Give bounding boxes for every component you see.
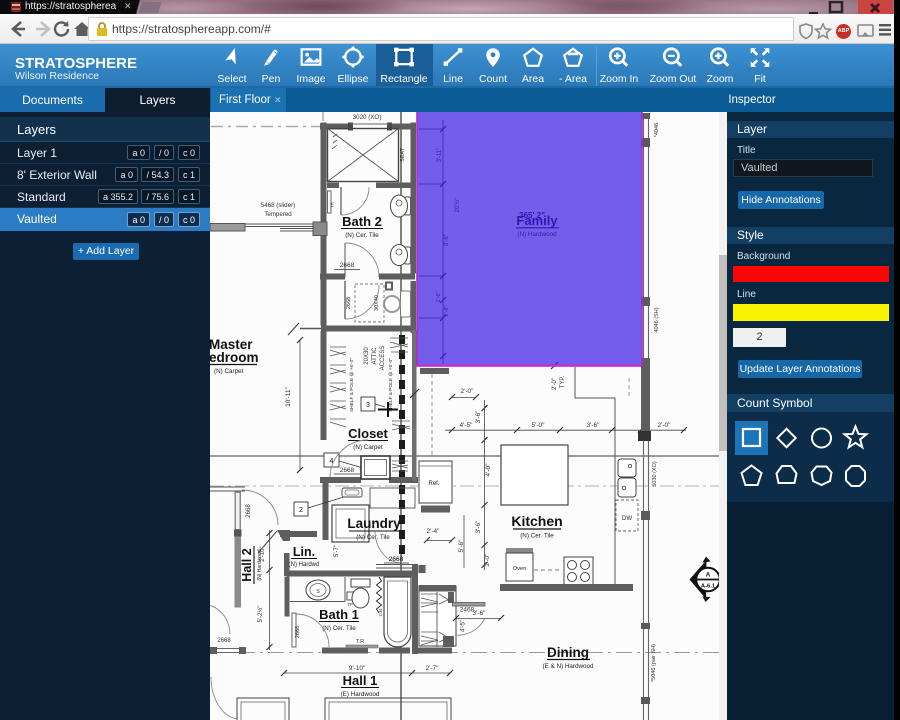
svg-text:A: A xyxy=(706,572,711,579)
svg-text:(N) Cer. Tile: (N) Cer. Tile xyxy=(520,533,554,540)
svg-text:2'-10": 2'-10" xyxy=(260,546,266,561)
svg-text:2'-0": 2'-0" xyxy=(552,378,558,390)
svg-text:2668: 2668 xyxy=(340,467,355,474)
svg-text:Oven: Oven xyxy=(513,566,527,572)
svg-text:3'-6": 3'-6" xyxy=(473,610,487,617)
svg-text:2668: 2668 xyxy=(346,297,352,309)
svg-text:2: 2 xyxy=(299,507,303,514)
svg-text:(N) Cer. Tile: (N) Cer. Tile xyxy=(356,534,390,541)
svg-text:SHELF & POLE @ +6'-0": SHELF & POLE @ +6'-0" xyxy=(349,358,355,412)
svg-text:Hall 2: Hall 2 xyxy=(240,548,254,581)
svg-text:Hall 1: Hall 1 xyxy=(343,673,378,688)
svg-text:2668: 2668 xyxy=(246,504,252,518)
svg-text:5'-6": 5'-6" xyxy=(458,539,465,553)
svg-text:4'-5": 4'-5" xyxy=(461,620,467,632)
svg-text:(N) Cer. Tile: (N) Cer. Tile xyxy=(322,625,356,632)
svg-text:*4046: *4046 xyxy=(654,123,660,137)
svg-text:3: 3 xyxy=(366,402,370,409)
svg-text:5'-0": 5'-0" xyxy=(532,422,546,429)
svg-text:3'-6": 3'-6" xyxy=(587,422,601,429)
svg-text:(N) Hardwd: (N) Hardwd xyxy=(289,562,320,568)
svg-text:30X40: 30X40 xyxy=(374,295,380,311)
svg-text:3020 (XO): 3020 (XO) xyxy=(353,114,382,121)
svg-text:Laundry: Laundry xyxy=(347,516,401,531)
svg-text:(N) Carpet: (N) Carpet xyxy=(353,444,383,451)
svg-text:2'-0": 2'-0" xyxy=(484,553,491,567)
svg-text:TYP.: TYP. xyxy=(560,375,566,388)
svg-text:5'-7": 5'-7" xyxy=(334,545,340,557)
svg-text:5'-2½": 5'-2½" xyxy=(257,606,264,623)
svg-text:Dining: Dining xyxy=(547,645,589,660)
svg-text:ACCESS: ACCESS xyxy=(380,346,386,371)
svg-text:TR: TR xyxy=(330,201,335,208)
svg-text:Closet: Closet xyxy=(348,426,388,441)
svg-text:3'-6": 3'-6" xyxy=(475,410,482,424)
svg-text:C.B.: C.B. xyxy=(378,608,383,617)
svg-text:(N) Cer. Tile: (N) Cer. Tile xyxy=(345,232,379,239)
svg-text:3'-6": 3'-6" xyxy=(475,520,482,534)
svg-text:edroom: edroom xyxy=(210,350,259,365)
svg-text:2'-4": 2'-4" xyxy=(427,528,441,535)
svg-text:*5046 (pair SH): *5046 (pair SH) xyxy=(651,644,657,682)
svg-text:Ref.: Ref. xyxy=(428,481,439,487)
svg-text:9'-10": 9'-10" xyxy=(349,665,366,672)
svg-text:10'-11": 10'-11" xyxy=(285,386,292,406)
svg-text:2668: 2668 xyxy=(340,262,355,269)
svg-text:(E) Hardwood: (E) Hardwood xyxy=(341,691,380,698)
svg-text:5468 (slider): 5468 (slider) xyxy=(261,202,295,209)
svg-text:A-6.1: A-6.1 xyxy=(701,584,716,590)
svg-text:DW: DW xyxy=(622,516,632,522)
svg-text:4046 (SH): 4046 (SH) xyxy=(654,307,660,332)
svg-text:Kitchen: Kitchen xyxy=(511,513,562,529)
svg-text:4'-0": 4'-0" xyxy=(485,463,492,477)
svg-text:2'-0": 2'-0" xyxy=(461,388,475,395)
svg-text:T.R: T.R xyxy=(356,639,364,645)
svg-text:2668: 2668 xyxy=(389,556,404,563)
svg-text:Bath 2: Bath 2 xyxy=(342,214,382,229)
svg-text:ATTIC: ATTIC xyxy=(372,347,378,365)
svg-text:2668: 2668 xyxy=(295,626,301,638)
svg-text:2'-0": 2'-0" xyxy=(658,422,672,429)
svg-text:5030 (XO): 5030 (XO) xyxy=(652,461,658,487)
svg-text:4'-5": 4'-5" xyxy=(460,422,474,429)
svg-text:(N) Carpet: (N) Carpet xyxy=(214,368,244,375)
svg-text:2'-7": 2'-7" xyxy=(426,665,440,672)
svg-text:(E & N) Hardwood: (E & N) Hardwood xyxy=(542,663,594,670)
svg-text:Lin.: Lin. xyxy=(293,545,315,559)
svg-text:Tempered: Tempered xyxy=(264,211,292,218)
svg-text:20X30: 20X30 xyxy=(364,347,370,365)
svg-text:2668: 2668 xyxy=(217,638,231,644)
svg-text:Bath 1: Bath 1 xyxy=(319,607,359,622)
svg-text:SEAT: SEAT xyxy=(400,147,406,162)
